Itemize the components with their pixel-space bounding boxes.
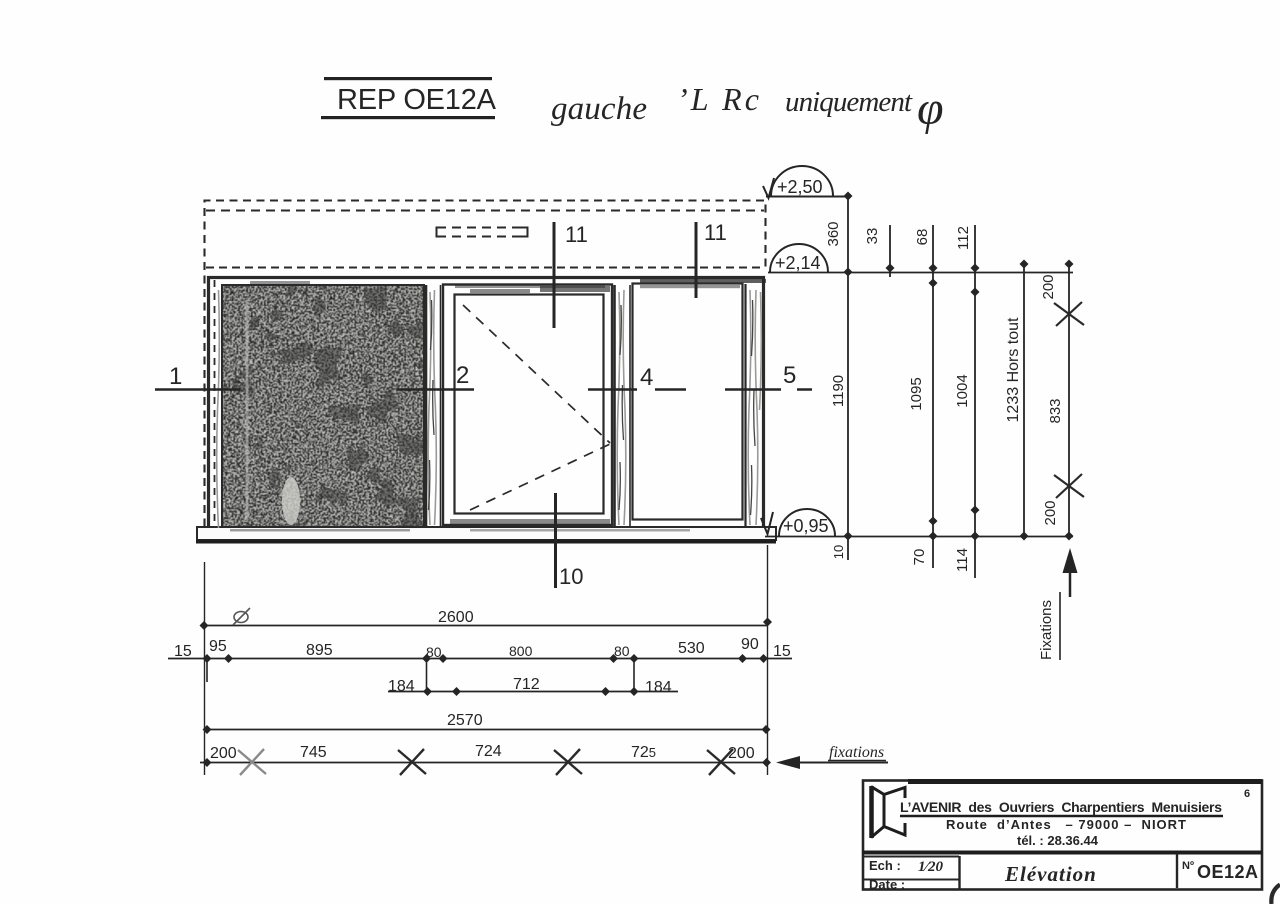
svg-text:Nº: Nº [1182,860,1194,872]
svg-text:200: 200 [728,745,755,762]
svg-text:φ: φ [917,82,944,135]
svg-text:200: 200 [1040,274,1057,299]
svg-text:gauche: gauche [551,91,647,127]
svg-text:tél. : 28.36.44: tél. : 28.36.44 [1017,833,1099,848]
svg-text:6: 6 [1244,788,1250,800]
svg-text:200: 200 [210,745,237,762]
svg-text:2570: 2570 [447,712,483,729]
svg-text:112: 112 [955,226,972,250]
svg-text:1⁄20: 1⁄20 [918,859,944,875]
svg-text:2600: 2600 [438,609,474,626]
svg-text:745: 745 [300,744,327,761]
svg-text:11: 11 [704,220,727,245]
svg-text:10: 10 [831,545,846,559]
svg-text:68: 68 [914,229,931,246]
svg-text:15: 15 [174,643,192,660]
svg-text:2: 2 [456,362,469,389]
svg-text:+2,14: +2,14 [775,253,821,273]
svg-text:1: 1 [169,363,182,390]
svg-text:15: 15 [773,643,791,660]
svg-text:fixations: fixations [829,744,884,761]
svg-text:1004: 1004 [954,374,971,407]
svg-text:33: 33 [864,228,881,245]
svg-text:+2,50: +2,50 [777,177,823,197]
svg-text:4: 4 [640,364,653,391]
svg-text:184: 184 [388,678,415,695]
svg-text:L’AVENIR des Ouvriers Charp: L’AVENIR des Ouvriers Charpentiers Menui… [900,799,1222,815]
svg-text:REP OE12A: REP OE12A [337,84,497,116]
svg-text:530: 530 [678,640,705,657]
svg-text:200: 200 [1042,500,1059,525]
svg-text:1233 Hors tout: 1233 Hors tout [1005,317,1022,423]
svg-text:+0,95: +0,95 [783,516,829,536]
svg-text:11: 11 [565,222,588,247]
svg-text:95: 95 [209,638,227,655]
svg-text:70: 70 [911,549,928,566]
svg-text:895: 895 [306,642,333,659]
svg-text:10: 10 [559,564,583,589]
svg-text:725: 725 [631,744,656,761]
svg-text:Date :: Date : [869,877,905,892]
svg-text:80: 80 [614,643,630,659]
svg-text:90: 90 [741,636,759,653]
svg-text:OE12A: OE12A [1197,862,1259,882]
svg-text:724: 724 [475,743,502,760]
svg-text:Route d’Antes – 79000 – NI: Route d’Antes – 79000 – NIORT [946,817,1186,832]
svg-text:Elévation: Elévation [1004,862,1097,886]
svg-text:5: 5 [783,362,796,389]
svg-text:184: 184 [645,679,672,696]
svg-text:712: 712 [513,676,540,693]
svg-text:1190: 1190 [830,375,847,407]
svg-text:800: 800 [509,643,533,659]
svg-text:Fixations: Fixations [1038,600,1055,660]
svg-text:114: 114 [954,548,971,572]
svg-text:Ech :: Ech : [869,858,901,873]
svg-text:uniquement: uniquement [785,86,913,118]
svg-text:833: 833 [1047,398,1064,423]
svg-text:360: 360 [825,221,842,246]
svg-text:1095: 1095 [908,377,925,410]
